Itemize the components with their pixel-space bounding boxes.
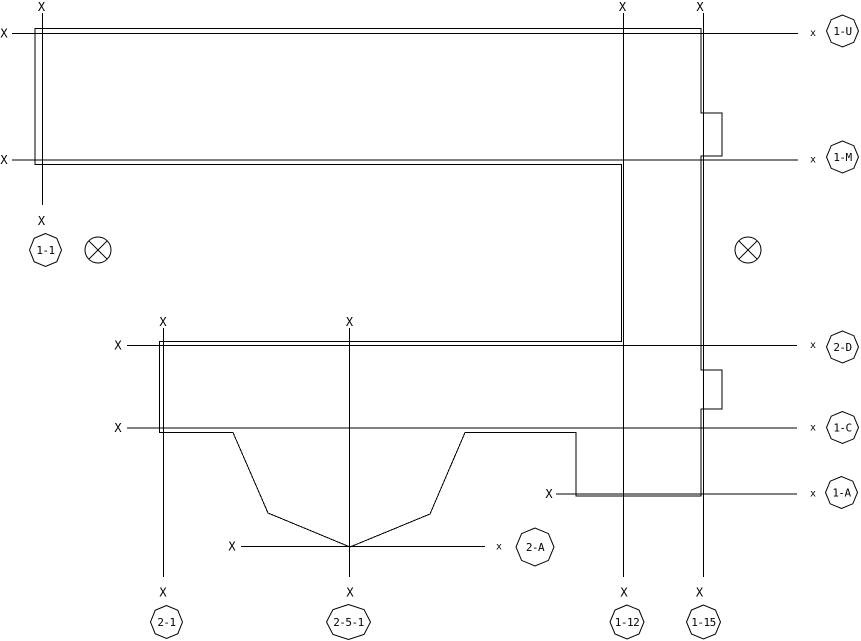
grid-bubble-label-1-U: 1-U (833, 25, 851, 38)
axis-end-marker: X (159, 586, 167, 600)
axis-end-marker: x (810, 155, 816, 166)
grid-bubble-label-2-A: 2-A (526, 541, 545, 554)
axis-end-marker: X (114, 421, 122, 435)
circled-x-symbol (85, 237, 111, 263)
grid-bubble-label-1-1: 1-1 (36, 244, 54, 257)
floor-plan-canvas: Xx1-UXx1-MXx2-DXx1-CXx1-AXx2-AXX1-1XX2-1… (0, 0, 861, 641)
axis-end-marker: x (810, 423, 816, 434)
axis-end-marker: X (696, 0, 704, 14)
axis-end-marker: X (159, 315, 167, 329)
axis-end-marker: X (114, 339, 122, 353)
axis-end-marker: X (696, 586, 704, 600)
grid-bubble-label-1-M: 1-M (833, 151, 852, 164)
grid-bubble-label-1-A: 1-A (832, 487, 851, 500)
grid-bubble-label-1-15: 1-15 (691, 616, 716, 629)
axis-end-marker: x (810, 489, 816, 500)
axis-end-marker: X (38, 0, 46, 14)
axis-end-marker: x (810, 28, 816, 39)
drawing-page: Xx1-UXx1-MXx2-DXx1-CXx1-AXx2-AXX1-1XX2-1… (0, 0, 861, 641)
axis-end-marker: X (0, 153, 8, 167)
grid-bubble-label-1-C: 1-C (833, 422, 851, 435)
axis-end-marker: X (346, 586, 354, 600)
axis-end-marker: X (228, 540, 236, 554)
circled-x-symbol (735, 237, 761, 263)
axis-end-marker: X (620, 586, 628, 600)
grid-bubble-label-2-5-1: 2-5-1 (333, 616, 364, 629)
building-outline (35, 29, 722, 548)
axis-end-marker: X (619, 0, 627, 14)
grid-bubble-label-2-1: 2-1 (157, 616, 175, 629)
axis-end-marker: x (496, 542, 502, 553)
grid-bubble-label-2-D: 2-D (833, 341, 851, 354)
axis-end-marker: X (0, 27, 8, 41)
axis-end-marker: x (810, 340, 816, 351)
axis-end-marker: X (545, 487, 553, 501)
axis-end-marker: X (346, 315, 354, 329)
grid-bubble-label-1-12: 1-12 (615, 616, 640, 629)
axis-end-marker: X (38, 214, 46, 228)
